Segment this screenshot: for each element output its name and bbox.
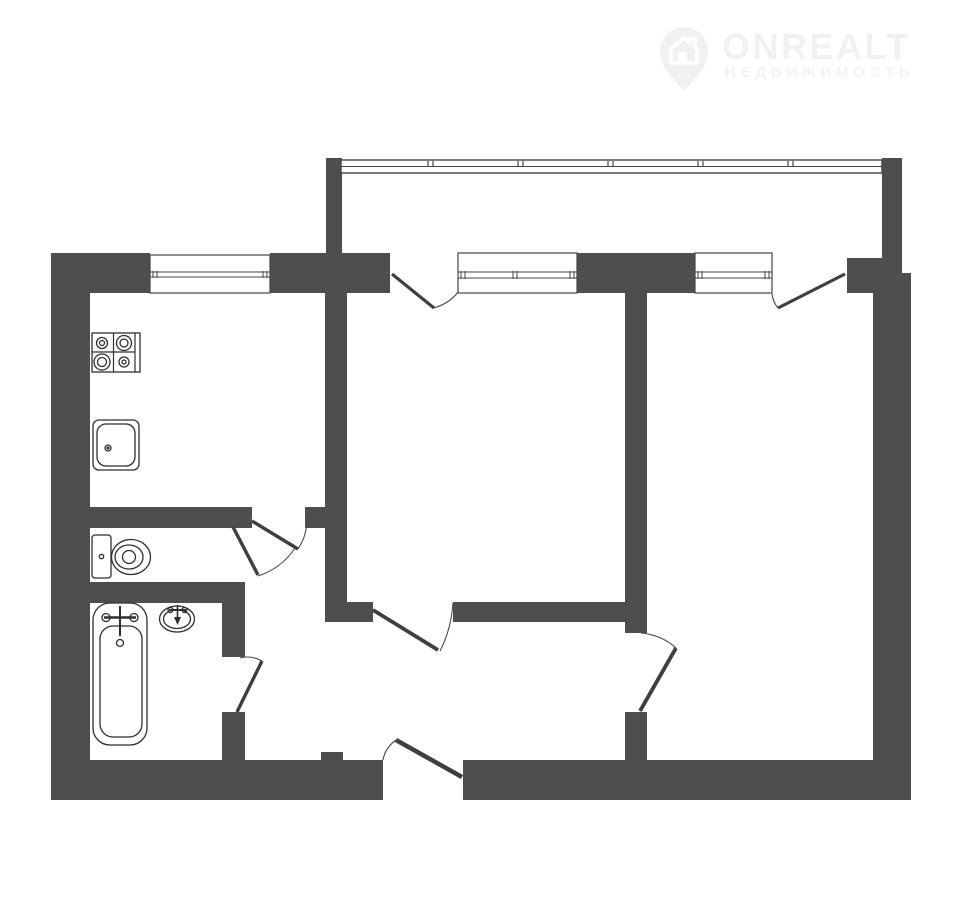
wall-bath-right-lower	[222, 712, 245, 760]
kitchen-window	[150, 255, 270, 293]
wall-balcony-left	[326, 158, 342, 253]
wc-door-leaf	[233, 527, 258, 575]
balcony-door-room1-swing-arc	[434, 292, 458, 308]
room2-door-leaf	[640, 648, 676, 711]
entrance-door-swing-arc	[383, 740, 396, 760]
wc-door-swing-arc	[258, 548, 295, 576]
wall-wc-bath-divider	[51, 582, 245, 603]
bathroom-door-leaf	[237, 661, 262, 712]
bathroom-door-swing-arc	[240, 657, 262, 661]
room1-door-swing-arc	[440, 603, 453, 651]
room1-door-leaf	[373, 610, 438, 650]
wall-bottom-stub	[321, 752, 343, 761]
room2-window	[695, 253, 772, 293]
toilet	[92, 535, 111, 578]
wall-hall-room1-left	[340, 602, 373, 622]
wall-room1-left	[325, 253, 347, 622]
balcony-door-room2-swing-arc	[772, 294, 778, 308]
floorplan-canvas	[0, 0, 960, 910]
wall-room2-left-upper	[625, 293, 647, 633]
wall-top-kitchen-left	[51, 253, 150, 293]
wall-kitchen-south	[51, 507, 252, 528]
wall-top-between-windows	[577, 253, 695, 293]
wall-bath-right-upper	[222, 603, 245, 657]
kitchen-sink	[97, 424, 135, 466]
kitchen-door-leaf	[252, 521, 298, 549]
wall-room2-left-lower	[625, 712, 647, 762]
wall-right-outer	[873, 273, 911, 800]
entrance-door-leaf	[396, 740, 462, 777]
wall-kitchen-south-piece	[305, 507, 325, 528]
balcony-door-room1-leaf	[392, 274, 434, 308]
bathtub	[100, 626, 142, 737]
room2-door-swing-arc	[641, 633, 676, 648]
kitchen-sink	[107, 447, 109, 449]
toilet	[115, 545, 143, 569]
wall-hall-room1-right	[453, 602, 625, 622]
wall-balcony-right	[882, 158, 902, 273]
wall-bottom-outer-left	[51, 760, 383, 800]
balcony-door-room2-leaf	[778, 274, 845, 308]
wall-bottom-outer-right	[463, 760, 911, 800]
